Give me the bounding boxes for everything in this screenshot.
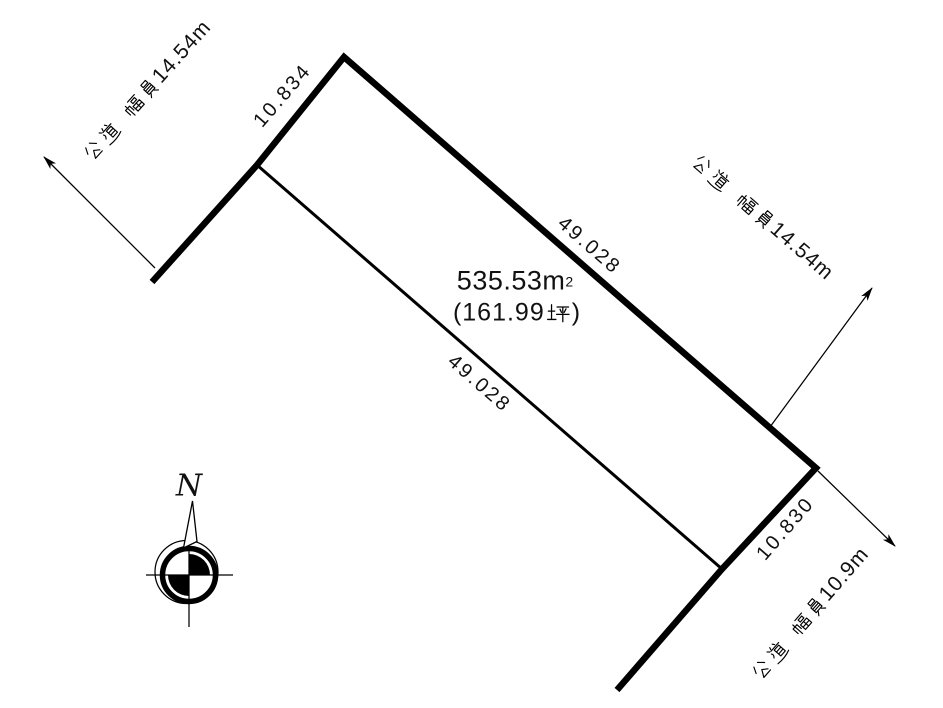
word-gap [785,633,794,643]
area-label-square-meters: 535.53m2 [457,266,573,297]
tsubo-value: 161.99 [462,299,544,328]
tsubo-open-paren: ( [453,299,462,328]
tsubo-close-paren: ) [572,299,581,328]
word-gap [117,114,126,124]
land-plot-diagram: 14.54m 14.54m 10.9m 10.834 49.028 49.028… [0,0,943,708]
area-unit: m [542,266,565,297]
area-unit-exponent: 2 [565,273,573,289]
area-value: 535.53 [457,266,543,297]
road-width-arrow-right [770,288,872,427]
rear-boundary-line [257,165,722,569]
compass-rose [146,501,233,627]
word-gap [728,188,738,197]
road-width-arrow-upper-left [44,157,155,268]
kanji-tsubo-glyph [547,302,570,325]
compass-needle-icon [184,501,198,548]
compass-north-label: N [176,469,202,504]
road-width-arrow-lower-right [818,471,895,546]
area-label-tsubo: (161.99 ) [453,299,581,328]
